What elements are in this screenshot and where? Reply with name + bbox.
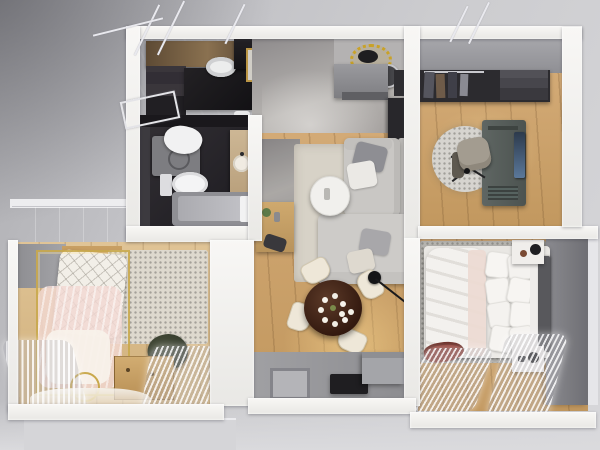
nursery-wardrobe	[12, 206, 130, 242]
nursery-curtain-right	[140, 346, 218, 412]
wall-office-right	[562, 27, 582, 227]
terrace-slab	[24, 418, 236, 450]
toilet-tank	[160, 174, 172, 196]
floorplan-render	[0, 0, 600, 450]
console-vase	[274, 212, 280, 222]
desk-tray	[488, 126, 518, 130]
table-lamp-top	[530, 244, 541, 255]
sunburst-center	[358, 50, 378, 63]
coffee-table-remote	[324, 188, 330, 200]
hanging-clothes-1	[423, 72, 434, 98]
wall-office-bedroom	[418, 226, 598, 239]
sideboard-front	[342, 92, 388, 100]
wall-entrance-bottom	[248, 398, 416, 414]
wall-nursery-left	[8, 240, 18, 412]
coffee-table	[310, 176, 350, 216]
hanging-clothes-4	[460, 74, 469, 96]
hanging-clothes-3	[448, 72, 457, 98]
hanging-clothes-2	[436, 74, 446, 98]
desk-vent	[488, 186, 518, 200]
wardrobe-shelves	[500, 70, 548, 100]
console-plant	[262, 208, 271, 217]
nightstand-decor-top	[520, 250, 527, 257]
wall-nursery-bottom	[8, 404, 224, 420]
doormat	[270, 368, 310, 400]
dresser-knob-1	[126, 368, 130, 372]
kitchen-sink	[206, 57, 236, 77]
flower-centerpiece	[330, 305, 336, 311]
room-bedroom	[418, 239, 598, 411]
room-office	[418, 37, 564, 226]
bedroom-outer-wall	[588, 239, 598, 405]
wall-bath-right	[248, 115, 262, 241]
room-living-dining	[252, 39, 412, 400]
hall-console	[362, 352, 404, 384]
wall-bedroom-left	[404, 238, 420, 406]
wall-left-upper	[126, 26, 140, 240]
sofa-pillow-white	[346, 160, 378, 190]
wall-bedroom-bottom	[410, 412, 596, 428]
desk-monitor	[514, 132, 525, 178]
wall-nursery-living	[210, 240, 254, 406]
office-chair-hub	[464, 168, 470, 174]
wall-top	[126, 26, 582, 39]
wall-living-office	[404, 26, 420, 238]
vanity-faucet	[240, 152, 244, 156]
room-entrance	[254, 352, 412, 398]
office-concrete-wall	[418, 37, 564, 73]
bed-blush-throw	[468, 250, 486, 356]
